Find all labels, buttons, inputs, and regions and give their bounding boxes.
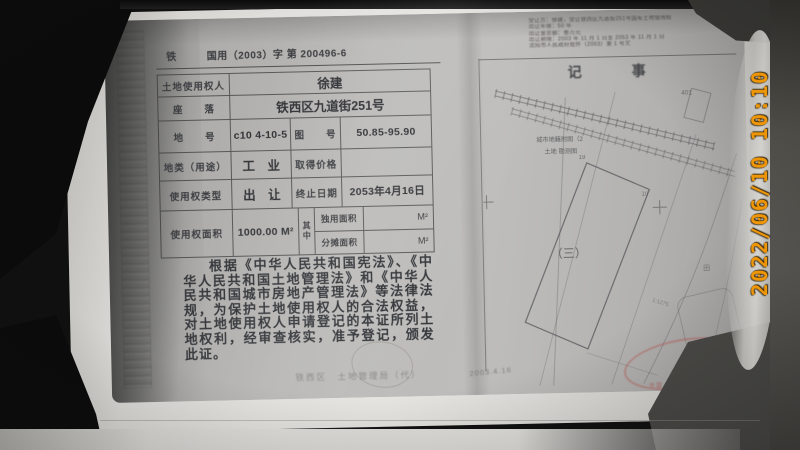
- map-field-mark: 田: [703, 264, 710, 272]
- map-scale-mark: 1:1275: [651, 298, 669, 309]
- location-label: 座 落: [158, 96, 231, 121]
- tenure-value: 出 让: [232, 179, 293, 209]
- table-row: 使用权面积 1000.00 M² 其中 独用面积 M² 分摊面积 M²: [161, 205, 434, 257]
- camera-timestamp: 2022/06/10 10:10: [748, 48, 778, 318]
- map-point-19: 19: [579, 155, 586, 161]
- map-plot-401: 401: [681, 89, 692, 96]
- notes-annotations: 受让方：徐建，受让铁西区九道街251号国有土地使用权 出让年限：50 年 出让金…: [528, 14, 734, 50]
- parcel-label: 地 号: [159, 120, 232, 153]
- sheet-value: 50.85-95.90: [341, 115, 432, 148]
- location-value: 铁西区九道街251号: [230, 91, 430, 119]
- apportioned-area-row: 分摊面积 M²: [315, 229, 433, 254]
- map-caption-line2: 土地 勘测图: [544, 147, 577, 156]
- among-label: 其中: [301, 221, 312, 241]
- price-value: [341, 147, 432, 176]
- holder-label: 土地使用权人: [158, 74, 230, 97]
- area-breakdown: 独用面积 M² 分摊面积 M²: [315, 205, 434, 254]
- expiry-label: 终止日期: [292, 177, 343, 207]
- area-value: 1000.00 M²: [233, 208, 300, 255]
- paper-edge-line: [100, 420, 760, 421]
- parcel-value: c10 4-10-5: [231, 119, 292, 151]
- certificate-serial: 铁 国用（2003）字 第 200496-6: [156, 42, 440, 69]
- map-caption-line1: 城市地籍附图（2: [536, 135, 583, 144]
- sheet-label: 图 号: [291, 117, 342, 149]
- photographed-land-certificate: 铁 国用（2003）字 第 200496-6 土地使用权人 徐建 座 落 铁西区…: [0, 0, 800, 450]
- apportioned-label: 分摊面积: [315, 230, 364, 254]
- expiry-value: 2053年4月16日: [342, 175, 433, 206]
- left-page: 铁 国用（2003）字 第 200496-6 土地使用权人 徐建 座 落 铁西区…: [148, 38, 478, 405]
- landuse-value: 工 业: [231, 151, 292, 179]
- bottom-paper-strip: [0, 429, 740, 450]
- area-label: 使用权面积: [161, 210, 234, 258]
- exclusive-unit: M²: [364, 205, 433, 229]
- map-parcel-mark: （三）: [551, 246, 587, 261]
- serial-prefix: 铁: [166, 48, 177, 63]
- dark-top-edge: [120, 0, 740, 9]
- landuse-label: 地类（用途）: [159, 152, 232, 181]
- map-point-10: 10: [641, 191, 648, 197]
- notes-title: 记 事: [470, 58, 748, 84]
- exclusive-label: 独用面积: [315, 207, 364, 231]
- certificate-content: 铁 国用（2003）字 第 200496-6 土地使用权人 徐建 座 落 铁西区…: [135, 11, 764, 429]
- apportioned-unit: M²: [364, 229, 433, 253]
- tenure-label: 使用权类型: [160, 180, 233, 211]
- certificate-table: 土地使用权人 徐建 座 落 铁西区九道街251号 地 号 c10 4-10-5 …: [157, 68, 435, 258]
- price-label: 取得价格: [291, 149, 342, 177]
- exclusive-area-row: 独用面积 M²: [315, 205, 434, 231]
- land-parcel-outline: [522, 161, 653, 350]
- serial-number: 国用（2003）字 第 200496-6: [207, 44, 347, 62]
